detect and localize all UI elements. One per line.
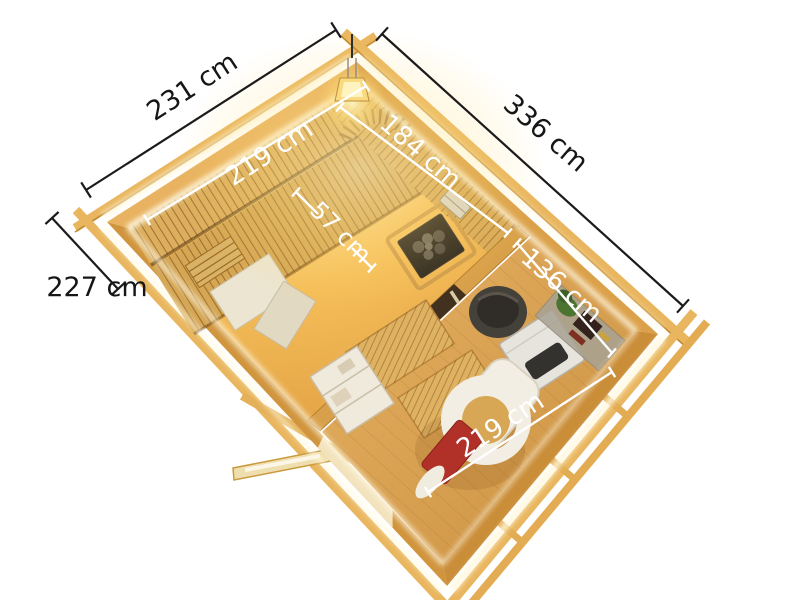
product-render-sauna-floorplan: 231 cm 336 cm 227 cm 2 — [0, 0, 800, 600]
dimension-label-side-227: 227 cm — [46, 272, 147, 303]
sauna-floorplan-svg: 231 cm 336 cm 227 cm 2 — [0, 0, 800, 600]
